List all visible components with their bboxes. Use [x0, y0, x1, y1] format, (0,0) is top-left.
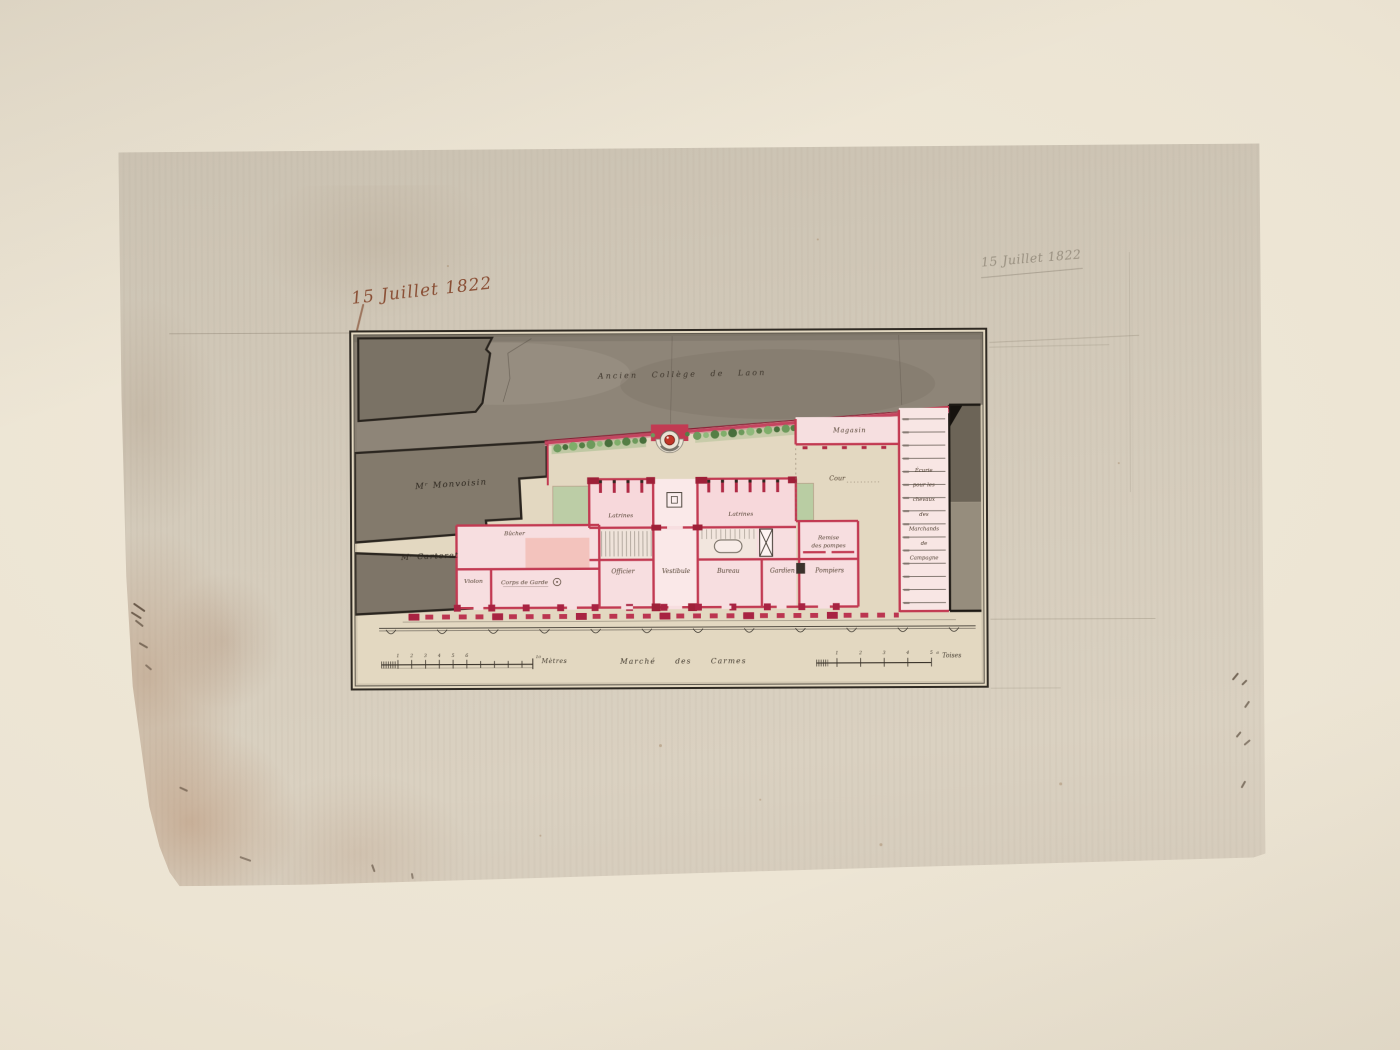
foxing-dot [817, 238, 819, 240]
plan-frame-inner: 1 2 3 4 5 6 10 Mètres 1 2 [353, 332, 985, 687]
pen-mark [1241, 781, 1246, 789]
room-label-officier: Officier [611, 568, 635, 575]
pen-mark [411, 873, 414, 879]
construction-line [1129, 252, 1131, 492]
pen-mark [133, 603, 145, 612]
scale-number: 1 [835, 650, 838, 656]
foxing-dot [1059, 782, 1062, 785]
room-label-latrines-right: Latrines [727, 512, 753, 518]
stable-label-line: Écurie [914, 466, 933, 474]
pen-mark [145, 664, 152, 670]
pen-mark [1241, 679, 1247, 685]
scale-right-end-value: 6 [936, 650, 939, 655]
room-label-remise-1: Remise [817, 535, 840, 541]
pencil-underline [981, 268, 1083, 278]
construction-line [989, 335, 1139, 343]
pen-mark [179, 786, 188, 791]
foxing-dot [659, 744, 662, 747]
foxing-dot [1118, 462, 1120, 464]
pen-mark [1244, 701, 1250, 708]
plan-frame: 1 2 3 4 5 6 10 Mètres 1 2 [349, 328, 989, 691]
room-label-violon: Violon [464, 579, 483, 585]
stable-label-line: Marchands [908, 526, 940, 532]
scale-right-unit: Toises [942, 653, 961, 660]
room-label-bucher: Bûcher [503, 530, 525, 537]
scale-number: 2 [858, 650, 862, 656]
pen-mark [240, 856, 252, 861]
room-label-bureau: Bureau [716, 568, 740, 575]
pen-mark [139, 642, 148, 648]
stable-label-line: Campagne [910, 555, 939, 561]
stable-label-line: pour les [913, 483, 935, 489]
scale-number: 4 [905, 650, 909, 656]
building-right-dark [949, 405, 981, 611]
scale-number: 4 [437, 653, 441, 659]
room-label-vestibule: Vestibule [662, 568, 691, 575]
foxing-dot [759, 799, 761, 801]
construction-line [989, 344, 1109, 348]
pen-mark [131, 611, 142, 619]
pen-mark [1243, 739, 1250, 745]
stable-label-line: des [919, 512, 929, 518]
scale-number: 5 [452, 653, 455, 659]
scale-left-end-value: 10 [536, 654, 542, 659]
plan-drawing: 1 2 3 4 5 6 10 Mètres 1 2 [354, 333, 984, 686]
room-label-pompiers: Pompiers [814, 568, 844, 575]
pen-mark [371, 864, 375, 872]
foxing-dot [539, 835, 541, 837]
scale-number: 2 [409, 653, 413, 659]
scale-left-unit: Mètres [541, 658, 568, 665]
parcel-block-topleft [358, 338, 492, 421]
stable-label-line: de [921, 541, 928, 547]
foxing-dot [879, 843, 882, 846]
street-label: Marché des Carmes [619, 656, 747, 666]
room-label-magasin: Magasin [832, 427, 866, 434]
gardien-hatch [796, 563, 805, 574]
stain-blob [158, 566, 289, 717]
room-label-cour: Cour [829, 475, 846, 482]
door-leaf-x [760, 529, 773, 556]
scale-number: 5 [930, 650, 933, 656]
foxing-dot [447, 265, 449, 267]
construction-line [169, 332, 351, 334]
stable-label-line: chevaux [913, 497, 935, 503]
drawing-sheet: 15 Juillet 1822 15 Juillet 1822 [116, 141, 1267, 888]
room-label-latrines-left: Latrines [607, 513, 633, 519]
scale-number: 6 [465, 653, 468, 659]
scale-number: 3 [424, 653, 427, 659]
stain-blob [107, 286, 228, 547]
scale-number: 3 [883, 650, 886, 656]
passage-pillar [667, 493, 682, 508]
date-inscription-pencil: 15 Juillet 1822 [980, 246, 1082, 269]
construction-line [991, 687, 1061, 688]
pen-mark [135, 620, 144, 627]
room-label-gardien: Gardien [770, 568, 795, 575]
room-label-remise-2: des pompes [812, 543, 846, 549]
date-inscription-ink: 15 Juillet 1822 [350, 274, 493, 309]
pen-mark [1232, 672, 1239, 680]
room-label-corps-de-garde: Corps de Garde [501, 580, 549, 586]
pen-mark [1236, 731, 1242, 737]
construction-line [990, 618, 1155, 620]
scale-number: 1 [396, 653, 399, 659]
